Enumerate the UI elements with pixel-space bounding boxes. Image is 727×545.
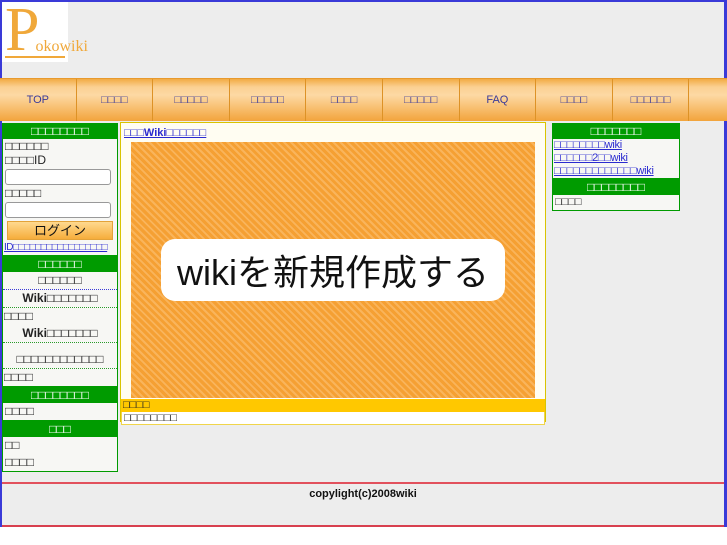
sidebar-section-3-item: □□□□ (3, 403, 117, 420)
nav-item-3[interactable]: □□□□□ (153, 79, 230, 121)
new-wiki-link-3[interactable]: □□□□□□□□□□□□□wiki (553, 165, 679, 178)
logo-rest: okowiki (35, 39, 87, 56)
new-wikis-section-title: □□□□□□□ (553, 124, 679, 139)
user-id-label: □□□□ID (5, 154, 115, 167)
new-wikis-section: □□□□□□□ □□□□□□□□wiki □□□□□□2□□wiki □□□□□… (552, 123, 680, 179)
menu-item-wiki-2[interactable]: Wiki□□□□□□□ (3, 325, 117, 343)
nav-item-label: □□□□ (331, 94, 358, 106)
nav-item-8[interactable]: □□□□ (536, 79, 613, 121)
logo-initial: P (5, 5, 39, 56)
page: P okowiki TOP □□□□ □□□□□ □□□□□ □□□□ □□□□… (0, 0, 727, 545)
password-input[interactable] (5, 202, 111, 218)
nav-item-2[interactable]: □□□□ (77, 79, 154, 121)
site-logo-text: P okowiki (5, 2, 65, 58)
sidebar-section-3: □□□□□□□□ □□□□ (2, 387, 118, 421)
sidebar-section-3-title: □□□□□□□□ (3, 388, 117, 403)
login-button[interactable]: ログイン (7, 221, 113, 240)
footer: copylight(c)2008wiki (2, 482, 724, 527)
nav-item-label: □□□□ (561, 94, 588, 106)
nav-item-faq[interactable]: FAQ (460, 79, 537, 121)
notice-bar: □□□□ (121, 399, 545, 412)
left-sidebar: □□□□□□□□ □□□□□□ □□□□ID □□□□□ ログイン ID□□□□… (2, 123, 118, 472)
id-register-link[interactable]: ID□□□□□□□□□□□□□□□□□ (4, 242, 117, 253)
menu-item-1[interactable]: □□□□□□ (3, 272, 117, 290)
promo-banner[interactable]: wikiを新規作成する (131, 142, 535, 398)
nav-item-6[interactable]: □□□□□ (383, 79, 460, 121)
login-section: □□□□□□□□ □□□□□□ □□□□ID □□□□□ ログイン ID□□□□… (2, 123, 118, 256)
sidebar-section-4: □□□ □□ □□□□ (2, 421, 118, 472)
menu-item-wiki-1[interactable]: Wiki□□□□□□□ (3, 290, 117, 308)
right-section-2: □□□□□□□□ □□□□ (552, 179, 680, 211)
nav-item-label: TOP (27, 94, 49, 106)
nav-item-4[interactable]: □□□□□ (230, 79, 307, 121)
menu-item-3[interactable]: □□□□ (3, 308, 117, 325)
new-wiki-link-2[interactable]: □□□□□□2□□wiki (553, 152, 679, 165)
nav-item-label: FAQ (486, 94, 508, 106)
nav-item-label: □□□□□□ (631, 94, 671, 106)
nav-item-top[interactable]: TOP (0, 79, 77, 121)
password-label: □□□□□ (5, 187, 115, 200)
sidebar-section-4-item-1: □□ (3, 437, 117, 454)
right-sidebar: □□□□□□□ □□□□□□□□wiki □□□□□□2□□wiki □□□□□… (552, 123, 680, 211)
sidebar-section-4-item-2: □□□□ (3, 454, 117, 471)
login-intro-text: □□□□□□ (5, 140, 115, 153)
create-wiki-link[interactable]: □□□Wiki□□□□□□ (121, 126, 209, 139)
nav-item-label: □□□□ (101, 94, 128, 106)
site-logo[interactable]: P okowiki (2, 2, 68, 62)
copyright-text: copylight(c)2008wiki (309, 488, 417, 500)
menu-item-5[interactable]: □□□□□□□□□□□□ (3, 351, 117, 369)
nav-item-5[interactable]: □□□□ (306, 79, 383, 121)
sidebar-section-4-title: □□□ (3, 422, 117, 437)
user-id-input[interactable] (5, 169, 111, 185)
new-wiki-link-1[interactable]: □□□□□□□□wiki (553, 139, 679, 152)
menu-item-6[interactable]: □□□□ (3, 369, 117, 386)
top-navigation: TOP □□□□ □□□□□ □□□□□ □□□□ □□□□□ FAQ □□□□… (0, 78, 727, 121)
nav-item-label: □□□□□ (404, 94, 437, 106)
promo-banner-text: wikiを新規作成する (161, 239, 505, 301)
notice-item: □□□□□□□□ (121, 412, 545, 425)
nav-item-label: □□□□□ (251, 94, 284, 106)
menu-section: □□□□□□ □□□□□□ Wiki□□□□□□□ □□□□ Wiki□□□□□… (2, 256, 118, 387)
main-content: □□□Wiki□□□□□□ wikiを新規作成する □□□□ □□□□□□□□ (120, 122, 546, 422)
nav-item-label: □□□□□ (174, 94, 207, 106)
right-section-2-item: □□□□ (553, 195, 679, 210)
menu-section-title: □□□□□□ (3, 257, 117, 272)
nav-item-9[interactable]: □□□□□□ (613, 79, 690, 121)
right-section-2-title: □□□□□□□□ (553, 180, 679, 195)
login-section-title: □□□□□□□□ (3, 124, 117, 139)
